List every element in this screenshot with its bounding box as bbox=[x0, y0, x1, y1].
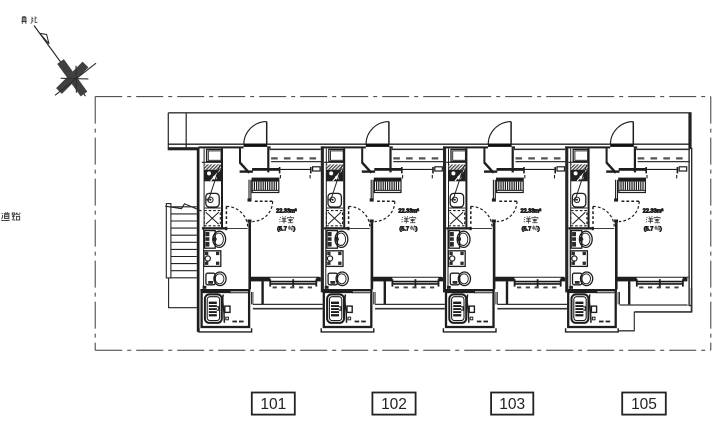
svg-text:101: 101 bbox=[260, 396, 286, 413]
svg-text:103: 103 bbox=[499, 396, 525, 413]
svg-text:105: 105 bbox=[631, 396, 657, 413]
svg-text:102: 102 bbox=[381, 396, 407, 413]
